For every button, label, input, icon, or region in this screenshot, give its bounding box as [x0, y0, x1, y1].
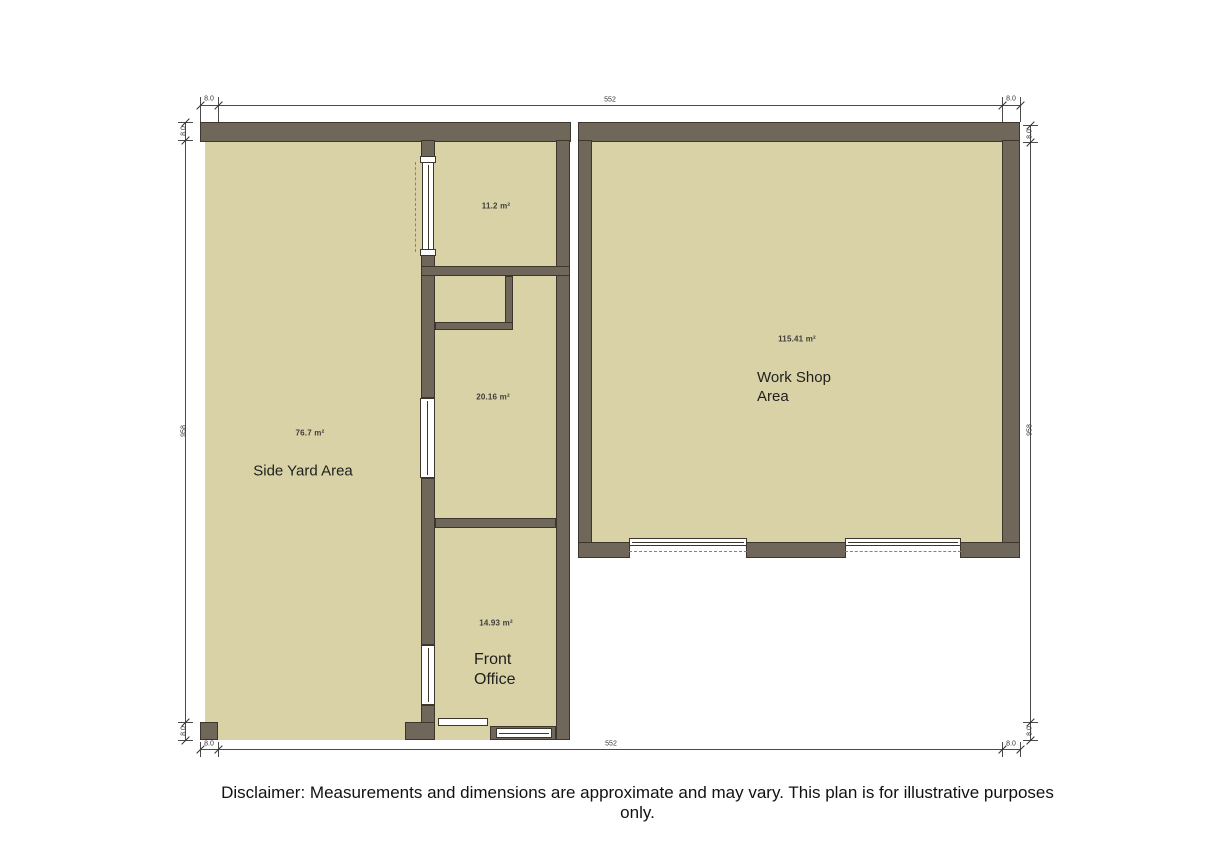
wall-workshop-left: [578, 140, 592, 558]
pier-office-corner: [405, 722, 435, 740]
dim-bottom-right-wall: 8.0: [1006, 741, 1016, 748]
room-label-workshop-line2: Area: [757, 387, 831, 406]
wall-top-workshop: [578, 122, 1020, 142]
sliding-track-2: [845, 551, 961, 552]
wall-below-store-top: [421, 266, 570, 276]
dim-right-span: 958: [1027, 424, 1034, 436]
door-office-leaf: [438, 718, 488, 726]
dim-top-right-wall: 8.0: [1006, 96, 1016, 103]
room-label-front-office-line2: Office: [474, 670, 516, 690]
wall-workshop-bottom-seg2: [746, 542, 846, 558]
disclaimer-text: Disclaimer: Measurements and dimensions …: [215, 783, 1060, 823]
sliding-door-workshop-1: [629, 538, 747, 546]
dim-bottom-left-wall: 8.0: [204, 741, 214, 748]
wall-middle-left-seg3: [421, 478, 435, 645]
window-office-left: [421, 645, 435, 705]
sliding-track-yard: [415, 162, 416, 252]
dim-top-span: 552: [604, 97, 616, 104]
room-label-side-yard: Side Yard Area: [253, 462, 353, 481]
dim-left-bottom-wall: 8.0: [181, 726, 188, 736]
sliding-track-1: [629, 551, 747, 552]
door-jamb-top: [420, 156, 436, 163]
dim-left-top-wall: 8.0: [181, 126, 188, 136]
wall-workshop-right: [1002, 140, 1020, 558]
sliding-door-yard: [422, 162, 434, 252]
area-label-workshop: 115.41 m²: [778, 335, 816, 344]
area-label-store-middle: 20.16 m²: [476, 393, 510, 402]
wall-middle-right: [556, 140, 570, 740]
room-label-front-office: Front Office: [474, 650, 516, 690]
dim-left-span: 958: [181, 425, 188, 437]
area-label-side-yard: 76.7 m²: [296, 429, 325, 438]
wall-above-office: [435, 518, 556, 528]
dim-line-top: [200, 105, 1020, 106]
wall-workshop-bottom-seg3: [960, 542, 1020, 558]
post-yard-corner: [200, 722, 218, 740]
wall-workshop-bottom-seg1: [578, 542, 630, 558]
room-label-front-office-line1: Front: [474, 650, 516, 670]
floor-plan: 8.0 552 8.0 8.0 552 8.0 8.0 958 8.0 8.0 …: [0, 0, 1224, 865]
room-label-workshop-line1: Work Shop: [757, 368, 831, 387]
dim-line-bottom: [200, 749, 1020, 750]
door-jamb-bottom: [420, 249, 436, 256]
dim-right-top-wall: 8.0: [1027, 129, 1034, 139]
dim-right-bottom-wall: 8.0: [1027, 726, 1034, 736]
area-label-store-top: 11.2 m²: [482, 202, 511, 211]
dim-bottom-span: 552: [605, 741, 617, 748]
dim-top-left-wall: 8.0: [204, 96, 214, 103]
sliding-door-workshop-2: [845, 538, 961, 546]
room-label-workshop: Work Shop Area: [757, 368, 831, 406]
area-label-front-office: 14.93 m²: [479, 619, 513, 628]
wall-top-left-building: [200, 122, 571, 142]
window-office-bottom: [496, 728, 552, 738]
wall-nook-horizontal: [435, 322, 513, 330]
window-middle-left: [420, 398, 435, 478]
